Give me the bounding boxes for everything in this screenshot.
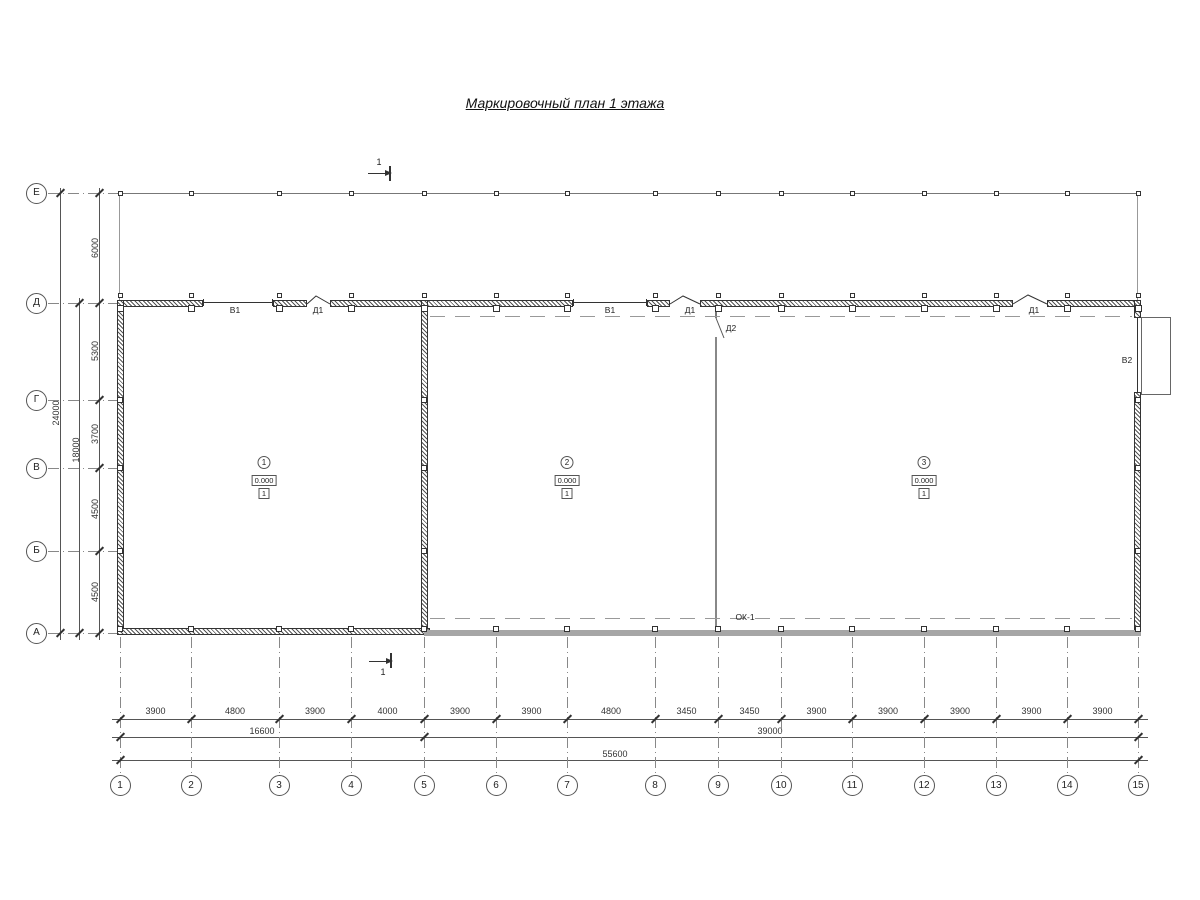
door-d2-leaf	[716, 318, 724, 338]
dimension-bottom-segment: 3450	[739, 706, 759, 716]
column-axis-line	[1138, 637, 1139, 775]
column-axis-line	[351, 637, 352, 775]
dimension-left-segment: 5300	[90, 341, 100, 361]
room-elevation: 0.000	[912, 475, 937, 486]
dimension-left-segment: 4500	[90, 582, 100, 602]
row-bubble-А: А	[26, 623, 47, 644]
canopy-column-marker	[994, 191, 999, 196]
dimension-bottom-segment: 3900	[450, 706, 470, 716]
dimension-left-subtotal: 18000	[71, 437, 81, 462]
wall-pilaster-top	[1065, 293, 1070, 298]
dimension-left-segment: 3700	[90, 424, 100, 444]
column-bubble-8: 8	[645, 775, 666, 796]
wall-pilaster-top	[994, 293, 999, 298]
window-b2-exterior-box	[1141, 317, 1171, 395]
column-marker-inner	[1135, 305, 1142, 312]
column-bubble-15: 15	[1128, 775, 1149, 796]
wall-pilaster	[421, 465, 427, 471]
opening-label-door-d2: Д2	[726, 323, 736, 333]
column-axis-line	[496, 637, 497, 775]
column-marker-bottom	[188, 626, 194, 632]
canopy-column-marker	[1065, 191, 1070, 196]
window-jamb	[203, 299, 204, 306]
column-marker-bottom	[715, 626, 721, 632]
row-bubble-Б: Б	[26, 541, 47, 562]
column-marker-bottom	[276, 626, 282, 632]
section-mark-line-top	[368, 173, 386, 174]
row-bubble-Д: Д	[26, 293, 47, 314]
column-marker-inner	[421, 305, 428, 312]
room-floor-type: 1	[919, 488, 930, 499]
row-axis-line	[48, 468, 117, 469]
opening-label-ok1: ОК-1	[735, 612, 754, 622]
door-d1-swing	[307, 296, 330, 304]
opening-label-window-b1: В1	[605, 305, 615, 315]
dimension-subtotal-right: 39000	[757, 726, 782, 736]
canopy-column-marker	[922, 191, 927, 196]
room-floor-type: 1	[259, 488, 270, 499]
wall-pilaster-top	[277, 293, 282, 298]
column-marker-bottom	[652, 626, 658, 632]
section-mark-tick-top	[389, 166, 391, 181]
opening-label-window-b1: В1	[230, 305, 240, 315]
dimension-bottom-segment: 4800	[225, 706, 245, 716]
floor-plan-canvas: Маркировочный план 1 этажа 16600 39000 5…	[0, 0, 1200, 900]
column-bubble-10: 10	[771, 775, 792, 796]
column-bubble-4: 4	[341, 775, 362, 796]
dimension-chain-line	[112, 760, 1148, 761]
column-axis-line	[279, 637, 280, 775]
dimension-bottom-segment: 3900	[1021, 706, 1041, 716]
room-elevation: 0.000	[555, 475, 580, 486]
row-axis-line	[48, 400, 117, 401]
column-bubble-12: 12	[914, 775, 935, 796]
wall-pilaster	[1135, 397, 1141, 403]
dimension-left-segment: 4500	[90, 499, 100, 519]
window-b1-line	[573, 302, 647, 303]
column-marker-inner	[564, 305, 571, 312]
wall-pilaster-top	[189, 293, 194, 298]
column-bubble-6: 6	[486, 775, 507, 796]
dimension-bottom-segment: 3900	[145, 706, 165, 716]
dimension-bottom-segment: 4800	[601, 706, 621, 716]
column-marker-inner	[493, 305, 500, 312]
wall-pilaster-top	[494, 293, 499, 298]
wall-pilaster-top	[118, 293, 123, 298]
wall-pilaster	[117, 548, 123, 554]
section-mark-line-bottom	[369, 661, 387, 662]
canopy-column-marker	[653, 191, 658, 196]
partition-wall-axis9	[715, 337, 717, 633]
wall-pilaster	[421, 548, 427, 554]
column-marker-bottom	[1064, 626, 1070, 632]
wall-pilaster	[1135, 548, 1141, 554]
section-mark-tick-bottom	[390, 653, 392, 668]
top-wall-segment	[700, 300, 1013, 307]
dimension-chain-line	[79, 298, 80, 640]
dimension-bottom-segment: 3900	[878, 706, 898, 716]
dimension-bottom-segment: 3450	[676, 706, 696, 716]
column-marker-bottom	[421, 626, 427, 632]
column-axis-line	[191, 637, 192, 775]
wall-pilaster-top	[779, 293, 784, 298]
right-wall-segment	[1134, 392, 1141, 635]
canopy-column-marker	[565, 191, 570, 196]
dimension-bottom-segment: 3900	[521, 706, 541, 716]
dimension-left-segment: 6000	[90, 238, 100, 258]
door-swing-overlay	[0, 0, 1200, 900]
canopy-column-marker	[850, 191, 855, 196]
column-bubble-1: 1	[110, 775, 131, 796]
canopy-column-marker	[277, 191, 282, 196]
column-bubble-3: 3	[269, 775, 290, 796]
column-marker-inner	[778, 305, 785, 312]
canopy-column-marker	[1136, 191, 1141, 196]
room-number-circle: 3	[918, 456, 931, 469]
canopy-side-line-left	[119, 193, 120, 300]
drawing-title: Маркировочный план 1 этажа	[466, 95, 665, 111]
canopy-edge-line	[117, 193, 1141, 194]
wall-pilaster	[117, 465, 123, 471]
column-marker-bottom	[564, 626, 570, 632]
wall-pilaster-top	[1136, 293, 1141, 298]
column-axis-line	[924, 637, 925, 775]
column-marker-inner	[276, 305, 283, 312]
column-marker-inner	[188, 305, 195, 312]
wall-pilaster	[1135, 465, 1141, 471]
column-marker-inner	[1064, 305, 1071, 312]
column-axis-line	[567, 637, 568, 775]
column-axis-line	[781, 637, 782, 775]
room-number-circle: 2	[561, 456, 574, 469]
window-jamb	[573, 299, 574, 306]
top-wall-segment	[647, 300, 670, 307]
column-marker-inner	[348, 305, 355, 312]
column-axis-line	[996, 637, 997, 775]
dimension-left-total: 24000	[51, 400, 61, 425]
column-marker-bottom	[849, 626, 855, 632]
canopy-column-marker	[118, 191, 123, 196]
wall-pilaster	[117, 397, 123, 403]
dimension-total: 55600	[602, 749, 627, 759]
column-axis-line	[424, 637, 425, 775]
row-bubble-В: В	[26, 458, 47, 479]
column-marker-bottom	[117, 626, 123, 632]
wall-pilaster-top	[349, 293, 354, 298]
room-number-circle: 1	[258, 456, 271, 469]
row-axis-line	[48, 303, 117, 304]
top-wall-segment	[1047, 300, 1141, 307]
column-axis-line	[1067, 637, 1068, 775]
canopy-side-line-right	[1137, 193, 1138, 300]
overhead-dashed-line-top	[430, 316, 1132, 317]
column-bubble-11: 11	[842, 775, 863, 796]
column-marker-inner	[652, 305, 659, 312]
room-elevation: 0.000	[252, 475, 277, 486]
dimension-bottom-segment: 3900	[950, 706, 970, 716]
dimension-bottom-segment: 3900	[305, 706, 325, 716]
opening-label-door-d1: Д1	[685, 305, 695, 315]
window-b1-line	[203, 302, 273, 303]
canopy-column-marker	[422, 191, 427, 196]
column-axis-line	[120, 637, 121, 775]
window-b2-line	[1137, 317, 1138, 393]
column-axis-line	[718, 637, 719, 775]
column-marker-bottom	[1135, 626, 1141, 632]
column-bubble-14: 14	[1057, 775, 1078, 796]
column-marker-bottom	[993, 626, 999, 632]
column-marker-bottom	[921, 626, 927, 632]
column-bubble-2: 2	[181, 775, 202, 796]
opening-label-window-b2: В2	[1122, 355, 1132, 365]
dimension-bottom-segment: 3900	[806, 706, 826, 716]
opening-label-door-d1: Д1	[313, 305, 323, 315]
column-bubble-7: 7	[557, 775, 578, 796]
opening-label-door-d1: Д1	[1029, 305, 1039, 315]
column-marker-inner	[117, 305, 124, 312]
wall-pilaster-top	[653, 293, 658, 298]
column-bubble-9: 9	[708, 775, 729, 796]
wall-pilaster-top	[422, 293, 427, 298]
section-mark-label-bottom: 1	[380, 667, 385, 677]
column-marker-inner	[715, 305, 722, 312]
wall-pilaster	[421, 397, 427, 403]
wall-pilaster-top	[850, 293, 855, 298]
door-d1-swing	[1013, 295, 1047, 304]
canopy-column-marker	[716, 191, 721, 196]
overhead-dashed-line-bottom	[430, 618, 1132, 619]
column-marker-bottom	[778, 626, 784, 632]
dimension-chain-line	[112, 737, 1148, 738]
dimension-bottom-segment: 4000	[377, 706, 397, 716]
wall-pilaster-top	[565, 293, 570, 298]
top-wall-segment	[330, 300, 573, 307]
dimension-bottom-segment: 3900	[1092, 706, 1112, 716]
column-marker-inner	[993, 305, 1000, 312]
column-marker-bottom	[493, 626, 499, 632]
canopy-column-marker	[779, 191, 784, 196]
canopy-column-marker	[189, 191, 194, 196]
door-d1-swing	[670, 296, 700, 304]
row-axis-line	[48, 551, 117, 552]
column-axis-line	[655, 637, 656, 775]
column-marker-inner	[849, 305, 856, 312]
window-jamb	[646, 299, 647, 306]
room-floor-type: 1	[562, 488, 573, 499]
column-axis-line	[852, 637, 853, 775]
row-bubble-Г: Г	[26, 390, 47, 411]
column-marker-bottom	[348, 626, 354, 632]
bottom-wall-room1	[117, 628, 430, 635]
section-mark-label-top: 1	[376, 157, 381, 167]
column-bubble-5: 5	[414, 775, 435, 796]
canopy-column-marker	[494, 191, 499, 196]
row-bubble-Е: Е	[26, 183, 47, 204]
column-bubble-13: 13	[986, 775, 1007, 796]
wall-pilaster-top	[922, 293, 927, 298]
column-marker-inner	[921, 305, 928, 312]
window-jamb	[272, 299, 273, 306]
canopy-column-marker	[349, 191, 354, 196]
dimension-subtotal-left: 16600	[249, 726, 274, 736]
wall-pilaster-top	[716, 293, 721, 298]
